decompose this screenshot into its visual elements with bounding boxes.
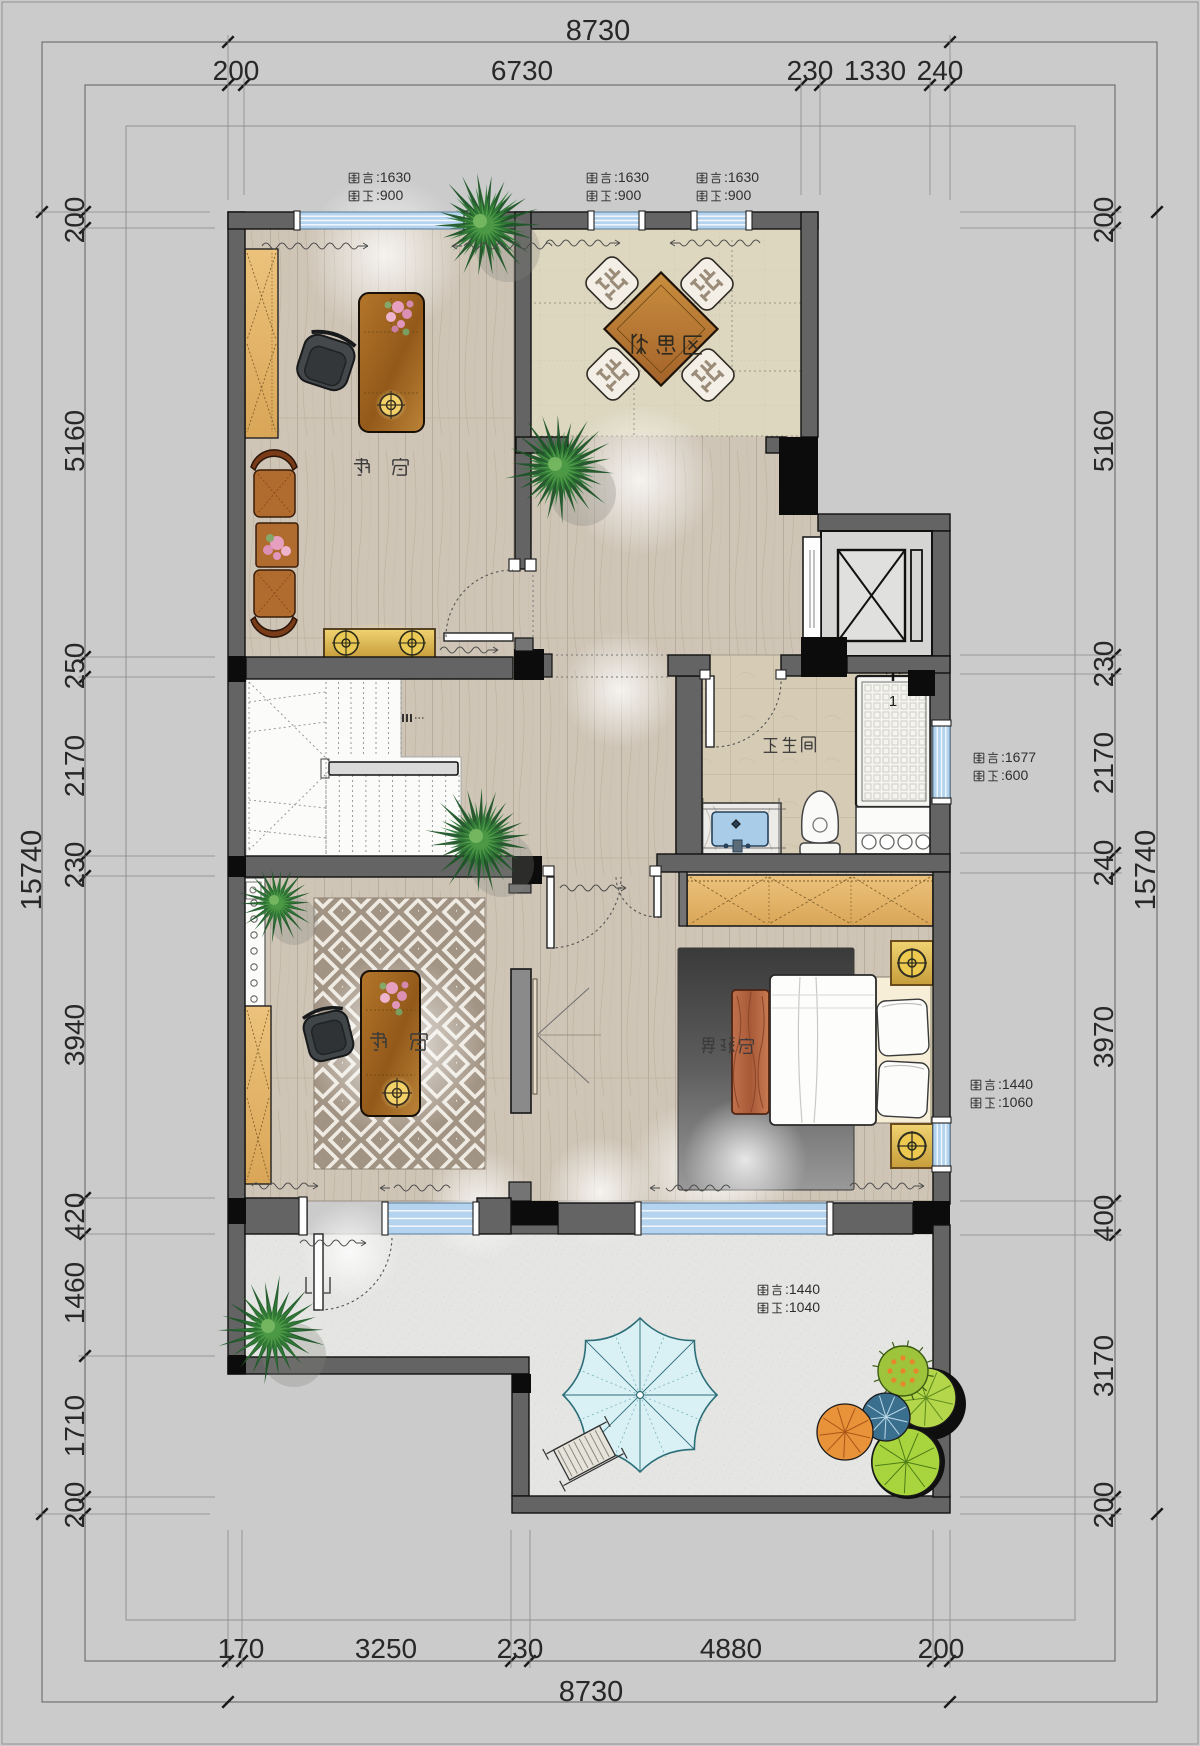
svg-text:230: 230	[787, 55, 834, 86]
svg-text::1677: :1677	[1001, 749, 1036, 765]
svg-text:5160: 5160	[59, 410, 90, 472]
svg-text::600: :600	[1001, 767, 1028, 783]
svg-text:8730: 8730	[559, 1676, 624, 1708]
svg-text:230: 230	[1088, 641, 1119, 688]
svg-text:240: 240	[917, 55, 964, 86]
svg-text::1630: :1630	[614, 169, 649, 185]
svg-text:250: 250	[59, 643, 90, 690]
svg-text:230: 230	[497, 1633, 544, 1664]
svg-text::1630: :1630	[376, 169, 411, 185]
svg-text:200: 200	[1088, 197, 1119, 244]
svg-text:230: 230	[59, 842, 90, 889]
svg-text::1040: :1040	[785, 1299, 820, 1315]
svg-text:6730: 6730	[491, 55, 553, 86]
svg-text::1630: :1630	[724, 169, 759, 185]
svg-text:3170: 3170	[1088, 1335, 1119, 1397]
svg-text:240: 240	[1088, 840, 1119, 887]
svg-text:400: 400	[1088, 1195, 1119, 1242]
svg-text::900: :900	[724, 187, 751, 203]
svg-text:1: 1	[889, 693, 897, 710]
svg-text:200: 200	[213, 55, 260, 86]
svg-text::900: :900	[376, 187, 403, 203]
svg-text:420: 420	[59, 1193, 90, 1240]
svg-text:3250: 3250	[355, 1633, 417, 1664]
svg-text:3940: 3940	[59, 1004, 90, 1066]
svg-text:200: 200	[1088, 1482, 1119, 1529]
svg-text::1060: :1060	[998, 1094, 1033, 1110]
svg-text:1330: 1330	[844, 55, 906, 86]
svg-text:200: 200	[918, 1633, 965, 1664]
svg-text:200: 200	[59, 1482, 90, 1529]
svg-text:15740: 15740	[16, 830, 48, 911]
svg-text:1710: 1710	[59, 1395, 90, 1457]
svg-text::1440: :1440	[785, 1281, 820, 1297]
svg-text::1440: :1440	[998, 1076, 1033, 1092]
svg-text:200: 200	[59, 197, 90, 244]
svg-text:3970: 3970	[1088, 1006, 1119, 1068]
svg-text:4880: 4880	[700, 1633, 762, 1664]
svg-text:15740: 15740	[1130, 830, 1162, 911]
svg-text:5160: 5160	[1088, 410, 1119, 472]
svg-text:8730: 8730	[566, 15, 631, 47]
svg-text::900: :900	[614, 187, 641, 203]
svg-text:2170: 2170	[59, 735, 90, 797]
svg-text:170: 170	[218, 1633, 265, 1664]
svg-text:2170: 2170	[1088, 732, 1119, 794]
svg-text:1460: 1460	[59, 1262, 90, 1324]
